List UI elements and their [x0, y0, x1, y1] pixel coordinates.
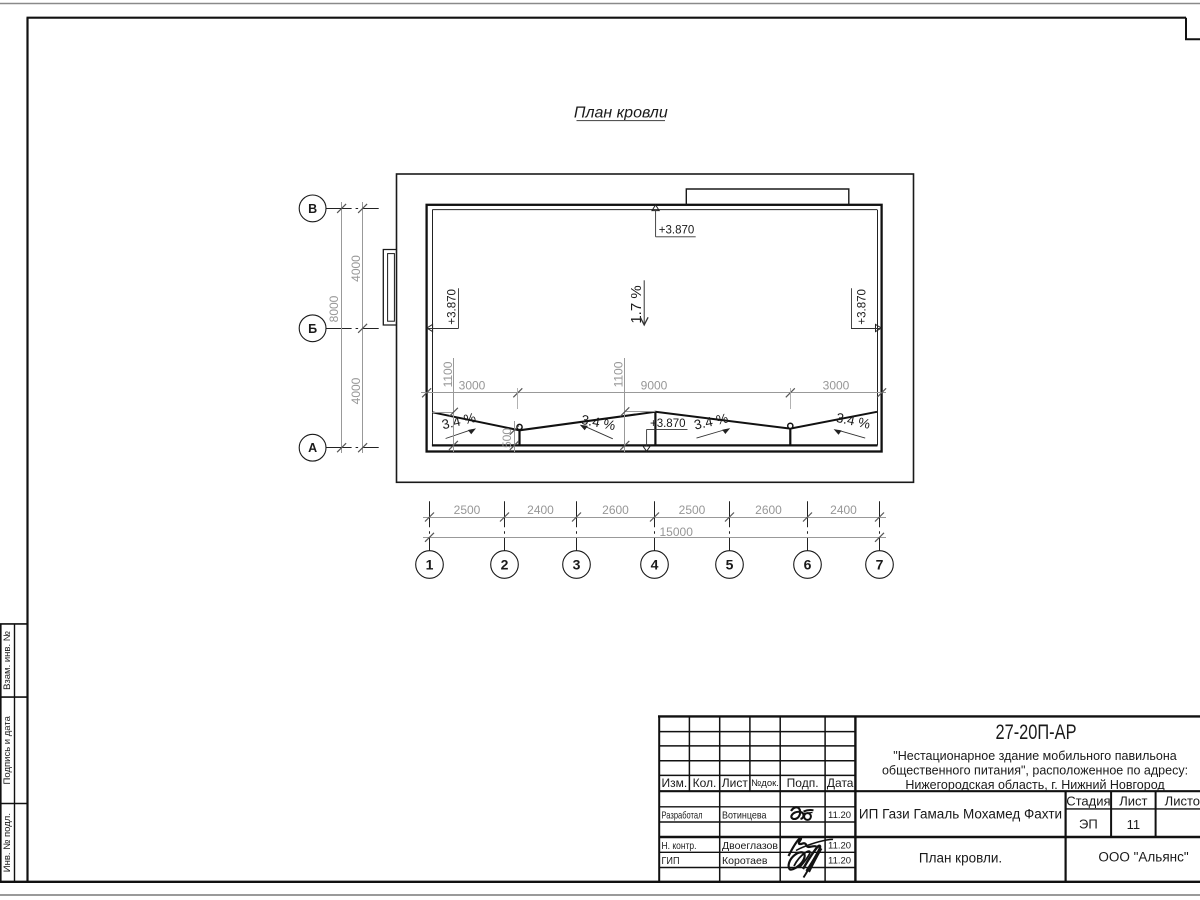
svg-text:4000: 4000	[349, 377, 363, 404]
svg-text:11.20: 11.20	[828, 840, 851, 851]
svg-text:4000: 4000	[349, 255, 363, 282]
svg-text:Изм.: Изм.	[661, 776, 687, 790]
svg-text:500: 500	[500, 428, 514, 448]
svg-text:В: В	[308, 202, 317, 216]
svg-text:Дата: Дата	[827, 776, 854, 790]
svg-text:Н. контр.: Н. контр.	[662, 840, 697, 852]
svg-text:Взам. инв. №: Взам. инв. №	[2, 631, 13, 690]
svg-text:+3.870: +3.870	[650, 418, 686, 430]
svg-text:11.20: 11.20	[828, 856, 851, 867]
svg-text:Разработал: Разработал	[662, 809, 703, 821]
svg-text:Нижегородская область, г. Нижн: Нижегородская область, г. Нижний Новгоро…	[905, 778, 1165, 792]
svg-text:Лист: Лист	[1119, 794, 1147, 809]
svg-text:1100: 1100	[441, 361, 455, 387]
svg-text:Подп.: Подп.	[787, 776, 819, 790]
svg-text:2600: 2600	[602, 503, 629, 517]
svg-text:2500: 2500	[679, 503, 706, 517]
svg-text:5: 5	[726, 557, 734, 573]
svg-text:План кровли: План кровли	[574, 104, 668, 121]
svg-text:ЭП: ЭП	[1079, 817, 1098, 832]
svg-text:2500: 2500	[454, 503, 481, 517]
svg-text:1.7 %: 1.7 %	[628, 285, 645, 323]
svg-text:6: 6	[804, 557, 812, 573]
svg-text:7: 7	[876, 557, 884, 573]
svg-text:общественного питания", распол: общественного питания", расположенное по…	[882, 764, 1188, 778]
svg-text:Б: Б	[308, 322, 317, 336]
svg-text:27-20П-АР: 27-20П-АР	[996, 721, 1077, 744]
svg-text:9000: 9000	[641, 379, 668, 393]
svg-text:3000: 3000	[459, 379, 486, 393]
svg-text:2400: 2400	[830, 503, 857, 517]
svg-text:А: А	[308, 441, 317, 455]
svg-text:ООО "Альянс": ООО "Альянс"	[1098, 849, 1188, 864]
svg-text:15000: 15000	[660, 525, 694, 539]
svg-text:"Нестационарное здание мобильн: "Нестационарное здание мобильного павиль…	[893, 749, 1176, 763]
svg-text:Подпись и дата: Подпись и дата	[2, 715, 13, 784]
svg-text:3: 3	[573, 557, 581, 573]
svg-text:Листов: Листов	[1165, 794, 1200, 809]
svg-text:ИП Гази Гамаль Мохамед Фахти: ИП Гази Гамаль Мохамед Фахти	[859, 807, 1062, 822]
svg-text:4: 4	[651, 557, 659, 573]
svg-text:+3.870: +3.870	[446, 289, 458, 325]
svg-text:11.20: 11.20	[828, 810, 851, 821]
svg-text:План кровли.: План кровли.	[919, 851, 1002, 866]
svg-text:1: 1	[426, 557, 434, 573]
svg-text:Двоеглазов: Двоеглазов	[722, 840, 778, 852]
svg-text:8000: 8000	[327, 295, 341, 322]
svg-text:Стадия: Стадия	[1066, 794, 1110, 809]
svg-text:Лист: Лист	[722, 776, 749, 790]
svg-text:Кол.: Кол.	[693, 776, 717, 790]
svg-text:Вотинцева: Вотинцева	[722, 809, 767, 821]
svg-text:+3.870: +3.870	[857, 289, 869, 325]
svg-text:Коротаев: Коротаев	[722, 855, 768, 867]
svg-text:1100: 1100	[611, 361, 625, 387]
svg-text:11: 11	[1127, 817, 1141, 832]
svg-text:2: 2	[501, 557, 509, 573]
svg-text:2600: 2600	[755, 503, 782, 517]
svg-text:Инв. № подл.: Инв. № подл.	[2, 813, 13, 872]
svg-text:+3.870: +3.870	[659, 225, 695, 237]
svg-text:3000: 3000	[823, 379, 850, 393]
svg-text:№док.: №док.	[751, 778, 779, 789]
svg-text:2400: 2400	[527, 503, 554, 517]
svg-text:ГИП: ГИП	[662, 855, 680, 867]
